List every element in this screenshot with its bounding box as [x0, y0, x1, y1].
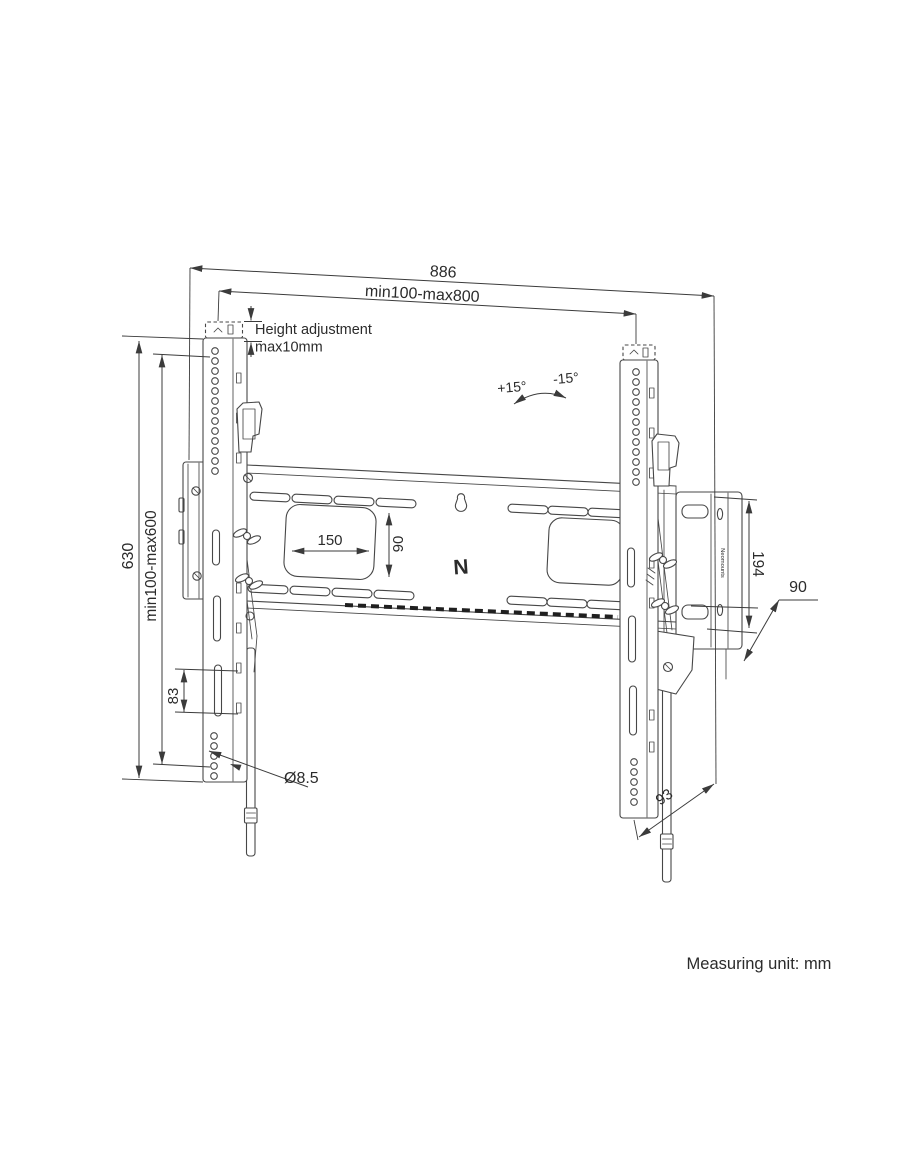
svg-text:194: 194 [749, 551, 766, 577]
svg-text:Ø8.5: Ø8.5 [284, 770, 319, 787]
svg-text:150: 150 [317, 532, 342, 549]
svg-text:90: 90 [390, 536, 407, 553]
measuring-unit-note: Measuring unit: mm [687, 955, 832, 973]
svg-text:Height adjustment: Height adjustment [255, 322, 372, 338]
svg-text:83: 83 [165, 688, 182, 705]
dim-cutout-width: 150 [292, 532, 369, 551]
keyhole [455, 494, 466, 512]
brand-name-vertical: Neomounts [719, 548, 725, 578]
height-adjust-cap [206, 322, 243, 338]
svg-text:min100-max800: min100-max800 [365, 283, 481, 306]
left-side-plate [179, 462, 206, 599]
dim-tilt-range: +15° -15° [497, 369, 580, 404]
height-adjust-cap [623, 345, 655, 360]
wall-mount-dimension-diagram: N Neomounts [0, 0, 910, 1155]
svg-text:+15°: +15° [497, 378, 528, 396]
technical-drawing: N Neomounts [0, 0, 910, 1155]
wall-plate-front: N [247, 465, 676, 629]
dim-cutout-height: 90 [389, 513, 407, 577]
svg-text:min100-max600: min100-max600 [143, 510, 160, 622]
left-top-hook [237, 402, 262, 452]
n-logo: N [453, 556, 470, 580]
svg-text:-15°: -15° [552, 369, 579, 387]
svg-text:886: 886 [429, 263, 457, 281]
dim-height-adjustment: Height adjustment max10mm [244, 306, 372, 357]
wall-plate-bottom-slots [248, 584, 627, 610]
svg-text:90: 90 [789, 579, 807, 596]
svg-text:max10mm: max10mm [255, 340, 323, 356]
svg-text:630: 630 [120, 543, 137, 570]
right-cutout [546, 517, 624, 586]
